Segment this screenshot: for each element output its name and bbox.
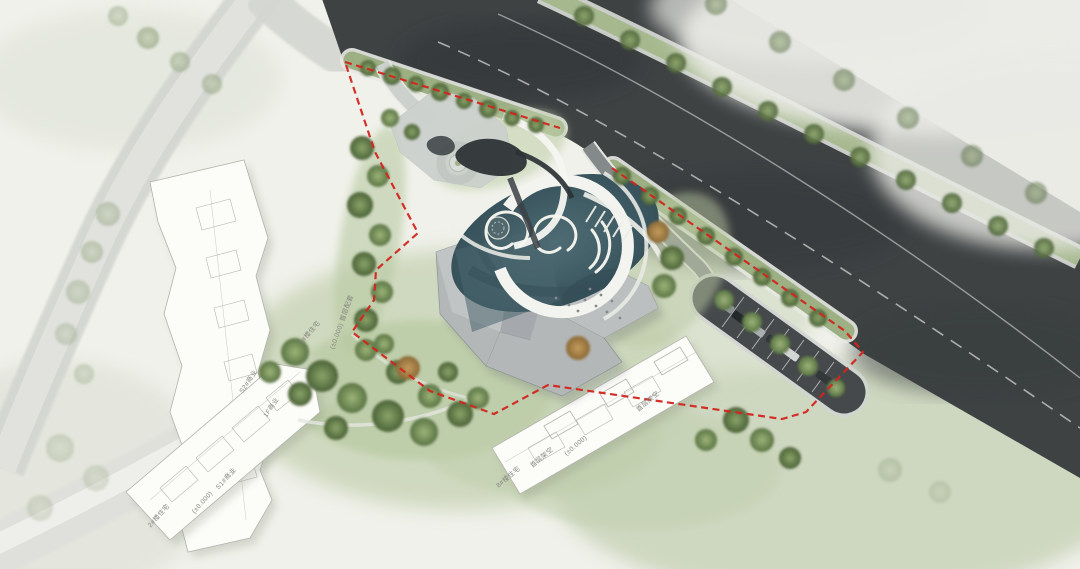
site-plan-drawing [0,0,1080,569]
site-plan-canvas: 1#楼住宅 (±0.000) 首层配套 2#楼住宅 (±0.000) S1#商业… [0,0,1080,569]
